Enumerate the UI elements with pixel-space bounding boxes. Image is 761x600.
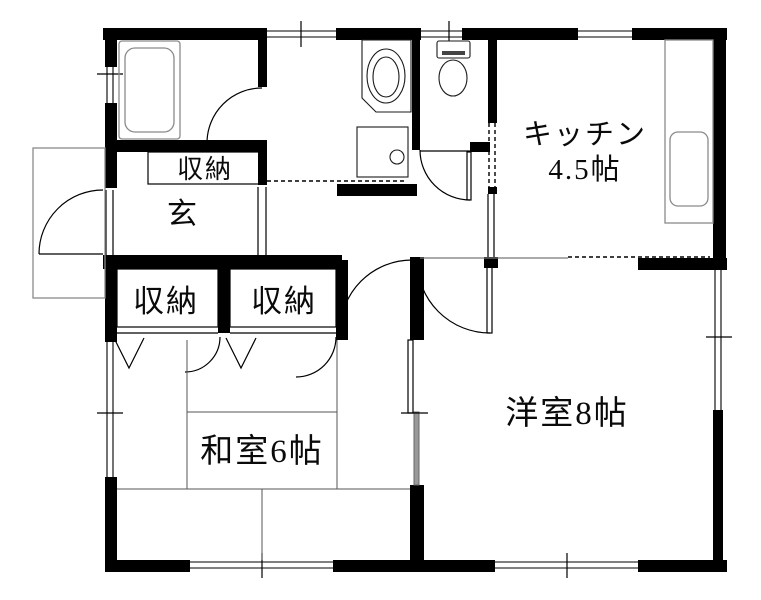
window-kitchen-top <box>578 31 632 37</box>
closet-door-symbols <box>114 337 336 377</box>
closet-right-label: 収納 <box>251 284 317 319</box>
window-washroom-top <box>267 21 336 47</box>
porch-outline <box>33 148 105 298</box>
kitchen-counter-icon <box>665 40 713 223</box>
floor-plan: キッチン 4.5帖 洋室8帖 和室6帖 収納 玄 収納 収納 <box>0 0 761 600</box>
japanese-room-door <box>340 260 412 332</box>
western-room-label: 洋室8帖 <box>505 395 629 432</box>
window-western-room-right <box>706 268 732 410</box>
japanese-room-label: 和室6帖 <box>200 433 324 470</box>
entrance-door <box>39 190 103 254</box>
bathroom-door <box>207 88 262 143</box>
western-room-door <box>417 260 492 333</box>
hall-storage-label: 収納 <box>177 155 233 184</box>
kitchen-label: キッチン <box>523 119 647 151</box>
room-divider-sliding-door <box>401 340 428 485</box>
window-japanese-room-left <box>97 342 123 477</box>
entrance-label: 玄 <box>167 198 199 231</box>
closet-left-label: 収納 <box>133 284 199 319</box>
floor-plan-svg: キッチン 4.5帖 洋室8帖 和室6帖 収納 玄 収納 収納 <box>0 0 761 600</box>
washbasin-icon <box>362 40 411 112</box>
toilet-icon <box>437 41 470 96</box>
window-western-room-bottom <box>495 553 638 578</box>
bathtub-icon <box>119 41 180 139</box>
toilet-door <box>420 150 471 200</box>
kitchen-size-label: 4.5帖 <box>548 153 621 186</box>
washing-machine-pan-icon <box>357 127 408 177</box>
